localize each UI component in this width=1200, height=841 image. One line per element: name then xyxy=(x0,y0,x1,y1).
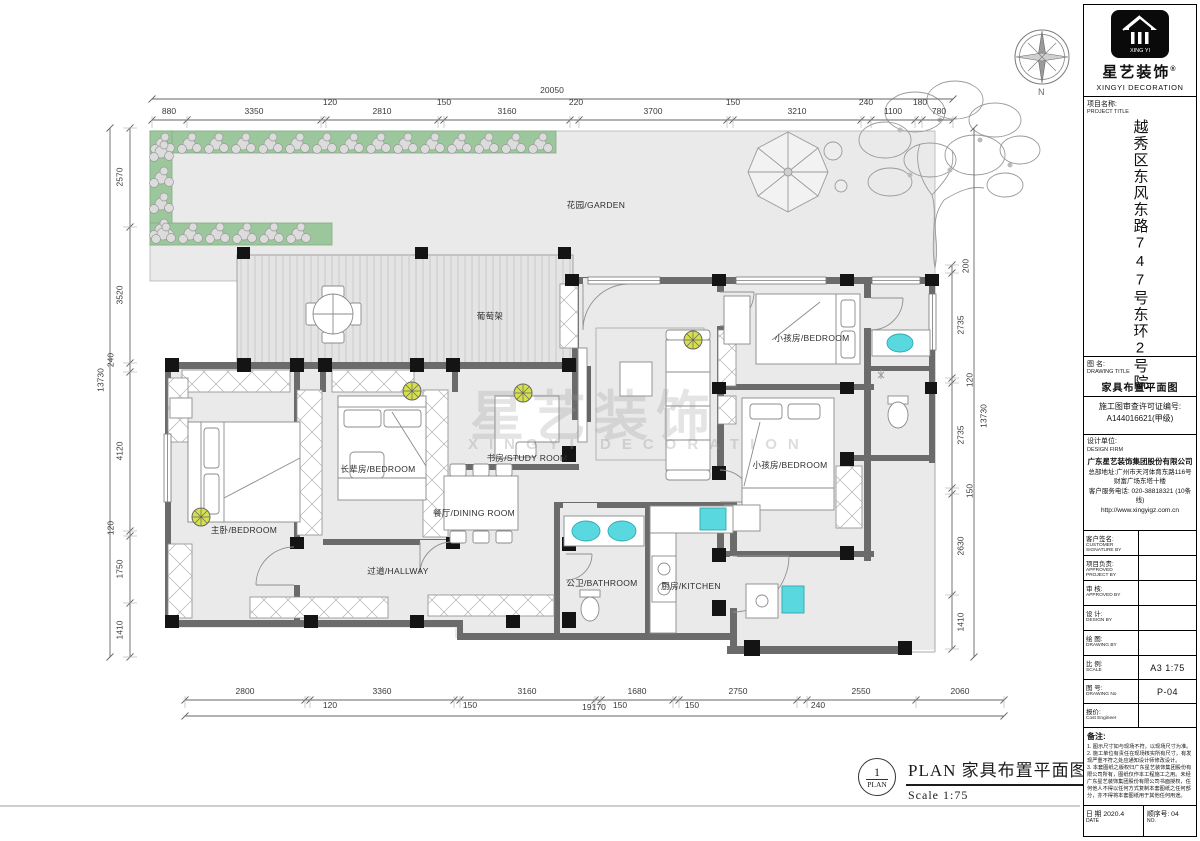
room-label-kids-bedroom-1: 小孩房/BEDROOM xyxy=(774,332,849,344)
signoff-blank xyxy=(1139,631,1196,655)
room-label-study: 书房/STUDY ROOM xyxy=(487,452,568,464)
room-label-kids-bedroom-2: 小孩房/BEDROOM xyxy=(752,459,827,471)
signoff-row-4: 绘 图:DRAWING BY xyxy=(1084,631,1196,655)
dim-label: 3160 xyxy=(518,687,537,696)
room-label-dining: 餐厅/DINING ROOM xyxy=(433,507,515,519)
dim-total: 20050 xyxy=(540,86,564,95)
permit-number: A144016621(甲级) xyxy=(1084,413,1196,425)
permit-line1: 施工图审查许可证编号: xyxy=(1084,401,1196,413)
dim-label: 150 xyxy=(685,701,699,710)
signoff-blank xyxy=(1139,556,1196,580)
firm-address-2: 财富广场东塔十楼 xyxy=(1087,477,1193,486)
sequence-cell: 顺序号: 04 NO. xyxy=(1144,806,1196,836)
date-row: 日 期 2020.4 DATE 顺序号: 04 NO. xyxy=(1084,806,1196,836)
note-2: 2. 施工单位有责任在现场核实所有尺寸，有发现严重不符之处应通知设计师修改设计。 xyxy=(1087,751,1193,765)
brand-header: XING YI 星艺装饰® XINGYI DECORATION xyxy=(1084,5,1196,97)
dim-label: 240 xyxy=(811,701,825,710)
notes-list: 1. 图示尺寸如与现场不符，以现场尺寸为准。2. 施工单位有责任在现场核实所有尺… xyxy=(1087,744,1193,800)
dim-label: 150 xyxy=(966,484,975,498)
dim-label: 120 xyxy=(966,373,975,387)
dim-label: 2800 xyxy=(236,687,255,696)
firm-phone: 客户服务电话: 020-38818321 (10条线) xyxy=(1087,487,1193,506)
dim-label: 2735 xyxy=(957,316,966,335)
dim-label: 150 xyxy=(463,701,477,710)
plan-text-overlay: 8803350120281015031602203700150321024011… xyxy=(0,0,1080,841)
drawing-label-zh: 图 名: xyxy=(1087,359,1193,369)
signoff-row-2: 审 核:APPROVED BY xyxy=(1084,581,1196,606)
dim-label: 1410 xyxy=(957,613,966,632)
xingyi-logo-icon: XING YI xyxy=(1111,10,1169,58)
room-label-garden: 花园/GARDEN xyxy=(567,199,625,211)
drawing-label-footer: 1 PLAN PLAN 家具布置平面图 Scale 1:75 xyxy=(858,756,1102,803)
firm-name: 广东星艺装饰集团股份有限公司 xyxy=(1087,457,1193,468)
dim-total: 13730 xyxy=(97,368,106,392)
signoff-blank xyxy=(1139,581,1196,605)
dim-label: 120 xyxy=(323,98,337,107)
dim-label: 1410 xyxy=(116,621,125,640)
dim-label: 180 xyxy=(913,98,927,107)
dim-label: 240 xyxy=(859,98,873,107)
dim-label: 3210 xyxy=(788,107,807,116)
dim-label: 1100 xyxy=(884,107,902,116)
firm-address-1: 总部地址:广州市天河体育东路116号 xyxy=(1087,468,1193,477)
drawing-title-section: 图 名: DRAWING TITLE 家具布置平面图 xyxy=(1084,357,1196,397)
project-title-section: 项目名称: PROJECT TITLE 越秀区东风东路747号东环2号院 xyxy=(1084,97,1196,357)
firm-label-en: DESIGN FIRM xyxy=(1087,447,1193,455)
dim-label: 880 xyxy=(162,107,176,116)
firm-url: http://www.xingyigz.com.cn xyxy=(1087,506,1193,515)
dim-label: 2750 xyxy=(729,687,748,696)
dim-label: 120 xyxy=(107,521,116,535)
dim-label: 240 xyxy=(107,353,116,367)
room-label-kitchen: 厨房/KITCHEN xyxy=(661,580,721,592)
permit-section: 施工图审查许可证编号: A144016621(甲级) xyxy=(1084,397,1196,435)
dim-label: 220 xyxy=(569,98,583,107)
brand-name-en: XINGYI DECORATION xyxy=(1096,83,1183,92)
dim-total: 13730 xyxy=(980,404,989,428)
dim-label: 4120 xyxy=(116,442,125,461)
signoff-row-3: 设 计:DESIGN BY xyxy=(1084,606,1196,631)
drawing-footer-title: PLAN 家具布置平面图 xyxy=(906,756,1102,786)
dim-label: 780 xyxy=(932,107,946,116)
dim-label: 1680 xyxy=(628,687,647,696)
dim-label: 2550 xyxy=(852,687,871,696)
firm-label-zh: 设计单位: xyxy=(1087,437,1193,447)
dim-label: 150 xyxy=(437,98,451,107)
brand-name-zh: 星艺装饰® xyxy=(1102,61,1177,82)
drawing-title: 家具布置平面图 xyxy=(1087,379,1193,394)
room-label-master-bedroom: 主卧/BEDROOM xyxy=(211,524,277,536)
svg-text:XING YI: XING YI xyxy=(1130,48,1151,54)
note-3: 3. 本套图纸之版权归广东星艺装饰集团股份有限公司所有，图纸仅作本工程施工之用。… xyxy=(1087,765,1193,800)
dim-label: 2735 xyxy=(957,426,966,445)
notes-section: 备注: 1. 图示尺寸如与现场不符，以现场尺寸为准。2. 施工单位有责任在现场核… xyxy=(1084,728,1196,806)
note-1: 1. 图示尺寸如与现场不符，以现场尺寸为准。 xyxy=(1087,744,1193,751)
detail-bubble: 1 PLAN xyxy=(858,758,896,796)
room-label-bathroom: 公卫/BATHROOM xyxy=(566,577,637,589)
drawing-footer-scale: Scale 1:75 xyxy=(906,786,1102,803)
dim-label: 150 xyxy=(726,98,740,107)
dim-label: 3520 xyxy=(116,286,125,305)
dim-label: 3360 xyxy=(373,687,392,696)
dim-label: 2060 xyxy=(951,687,970,696)
signoff-blank xyxy=(1139,606,1196,630)
scale-row-2: 报价:Cost Engineer xyxy=(1084,704,1196,727)
scale-row-1: 图 号:DRAWING NoP-04 xyxy=(1084,680,1196,704)
dim-label: 3160 xyxy=(498,107,517,116)
dim-label: 2570 xyxy=(116,168,125,187)
dim-total: 19170 xyxy=(582,703,606,712)
compass-letter: N xyxy=(1038,88,1045,97)
dim-label: 120 xyxy=(323,701,337,710)
dim-label: 2630 xyxy=(957,537,966,556)
room-label-hallway: 过道/HALLWAY xyxy=(367,565,428,577)
signoff-row-0: 客户签名:CUSTOMER SIGNATURE BY xyxy=(1084,531,1196,556)
project-label-en: PROJECT TITLE xyxy=(1087,109,1193,115)
detail-number: 1 xyxy=(866,766,888,780)
dim-label: 150 xyxy=(613,701,627,710)
dim-label: 200 xyxy=(962,259,971,273)
room-label-elder-bedroom: 长辈房/BEDROOM xyxy=(340,463,415,475)
project-label-zh: 项目名称: xyxy=(1087,99,1193,109)
detail-tag: PLAN xyxy=(867,780,887,789)
sheet-page: { "sheet": { "footer": {"circle_number":… xyxy=(0,0,1200,841)
title-block: XING YI 星艺装饰® XINGYI DECORATION 项目名称: PR… xyxy=(1083,4,1197,837)
dim-label: 3350 xyxy=(245,107,264,116)
drawing-label-en: DRAWING TITLE xyxy=(1087,369,1193,375)
signoff-table: 客户签名:CUSTOMER SIGNATURE BY项目负责:APPROVED … xyxy=(1084,531,1196,656)
design-firm-section: 设计单位: DESIGN FIRM 广东星艺装饰集团股份有限公司 总部地址:广州… xyxy=(1084,435,1196,531)
room-label-trellis: 葡萄架 xyxy=(477,310,503,322)
dim-label: 2810 xyxy=(373,107,392,116)
project-title: 越秀区东风东路747号东环2号院 xyxy=(1130,119,1151,391)
scale-table: 比 例:SCALEA3 1:75图 号:DRAWING NoP-04报价:Cos… xyxy=(1084,656,1196,728)
signoff-blank xyxy=(1139,531,1196,555)
dim-label: 3700 xyxy=(644,107,663,116)
signoff-row-1: 项目负责:APPROVED PROJECT BY xyxy=(1084,556,1196,581)
date-cell: 日 期 2020.4 DATE xyxy=(1084,806,1144,836)
drawing-sheet: 8803350120281015031602203700150321024011… xyxy=(0,0,1200,841)
dim-label: 1750 xyxy=(116,560,125,579)
house-roof-icon: XING YI xyxy=(1111,10,1169,58)
scale-row-0: 比 例:SCALEA3 1:75 xyxy=(1084,656,1196,680)
notes-title: 备注: xyxy=(1087,731,1193,742)
